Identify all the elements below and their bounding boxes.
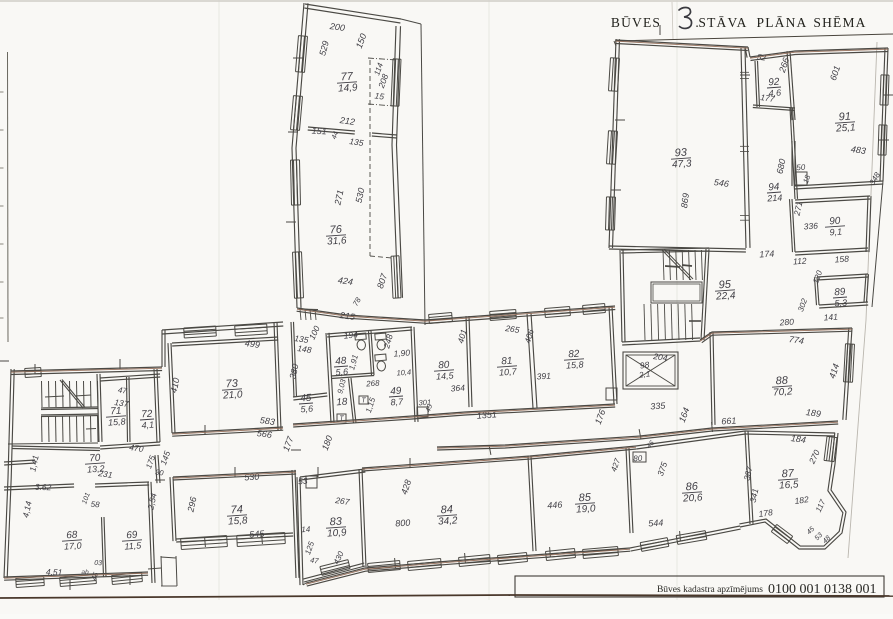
svg-text:774: 774	[788, 334, 804, 346]
svg-text:280: 280	[778, 317, 794, 328]
svg-text:95: 95	[718, 279, 732, 292]
svg-text:SHĒMA: SHĒMA	[813, 15, 866, 30]
svg-text:0100 001 0138 001: 0100 001 0138 001	[768, 582, 877, 597]
svg-text:50: 50	[796, 163, 806, 173]
svg-text:20,6: 20,6	[682, 492, 704, 504]
svg-text:86: 86	[685, 481, 699, 494]
svg-text:499: 499	[244, 338, 260, 350]
svg-text:BŪVES: BŪVES	[611, 15, 661, 30]
svg-text:4,1: 4,1	[141, 420, 154, 431]
svg-text:80: 80	[633, 454, 643, 464]
svg-text:16,5: 16,5	[779, 479, 800, 491]
svg-text:364: 364	[450, 383, 465, 394]
svg-text:19,0: 19,0	[576, 503, 597, 515]
svg-text:178: 178	[758, 507, 774, 519]
svg-text:112: 112	[793, 256, 807, 267]
svg-text:74: 74	[230, 504, 243, 517]
svg-text:17,0: 17,0	[64, 540, 82, 551]
svg-text:34,2: 34,2	[438, 515, 459, 527]
svg-text:189: 189	[805, 407, 821, 419]
svg-text:03: 03	[94, 560, 102, 568]
svg-text:83: 83	[329, 516, 343, 529]
svg-text:90: 90	[829, 216, 841, 228]
svg-text:15,8: 15,8	[566, 359, 584, 370]
svg-text:PLĀNA: PLĀNA	[756, 15, 807, 30]
svg-text:2,1: 2,1	[638, 369, 651, 380]
svg-text:70: 70	[89, 453, 101, 465]
svg-text:135: 135	[349, 136, 365, 148]
svg-text:1351: 1351	[476, 409, 497, 420]
svg-text:148: 148	[297, 343, 313, 355]
svg-text:70,2: 70,2	[773, 386, 794, 398]
svg-text:151: 151	[311, 125, 327, 136]
svg-text:87: 87	[781, 468, 795, 481]
svg-text:93: 93	[674, 147, 688, 160]
svg-text:STĀVA: STĀVA	[698, 15, 747, 30]
svg-text:10,4: 10,4	[396, 368, 411, 378]
svg-text:22,4: 22,4	[715, 290, 737, 302]
svg-text:89: 89	[834, 287, 846, 299]
svg-text:470: 470	[129, 442, 145, 454]
svg-text:8,7: 8,7	[390, 397, 404, 408]
svg-text:47,3: 47,3	[672, 158, 693, 170]
svg-text:69: 69	[126, 530, 138, 542]
svg-text:84: 84	[440, 504, 453, 517]
svg-text:424: 424	[337, 275, 353, 287]
svg-text:68: 68	[66, 530, 78, 542]
svg-text:194: 194	[343, 329, 358, 340]
svg-text:5,6: 5,6	[300, 404, 313, 415]
svg-text:81: 81	[501, 356, 513, 368]
svg-text:94: 94	[768, 182, 780, 194]
svg-text:82: 82	[568, 349, 580, 361]
svg-text:3.62: 3.62	[35, 482, 52, 493]
svg-text:158: 158	[834, 254, 849, 265]
svg-text:214: 214	[766, 192, 783, 203]
svg-text:335: 335	[650, 400, 667, 411]
svg-text:391: 391	[536, 371, 551, 382]
svg-text:204: 204	[652, 351, 669, 363]
svg-text:14,5: 14,5	[436, 370, 455, 381]
svg-text:15,8: 15,8	[228, 515, 249, 527]
svg-text:91: 91	[838, 111, 851, 124]
svg-text:14,9: 14,9	[338, 82, 359, 94]
svg-text:18: 18	[336, 397, 348, 409]
svg-text:137: 137	[114, 397, 130, 409]
svg-text:265: 265	[504, 323, 521, 335]
svg-text:9,1: 9,1	[829, 227, 842, 238]
svg-text:72: 72	[141, 409, 153, 421]
svg-text:76: 76	[329, 224, 343, 237]
svg-text:267: 267	[334, 495, 351, 507]
svg-text:583: 583	[259, 415, 275, 427]
svg-text:80: 80	[438, 360, 450, 372]
svg-text:15: 15	[374, 90, 385, 101]
svg-text:231: 231	[97, 468, 114, 480]
svg-text:177: 177	[760, 92, 776, 104]
svg-text:869: 869	[679, 192, 691, 208]
svg-text:88: 88	[775, 375, 789, 388]
svg-text:10,9: 10,9	[327, 527, 348, 539]
svg-text:800: 800	[395, 517, 411, 528]
svg-text:546: 546	[713, 177, 729, 189]
svg-text:25,1: 25,1	[835, 122, 856, 134]
svg-text:544: 544	[648, 517, 664, 528]
svg-text:446: 446	[547, 499, 563, 510]
svg-text:21,0: 21,0	[222, 389, 244, 401]
svg-text:483: 483	[850, 144, 866, 156]
svg-text:5,3: 5,3	[834, 298, 847, 309]
svg-text:47: 47	[117, 385, 128, 395]
svg-text:14: 14	[301, 525, 311, 535]
svg-text:182: 182	[794, 494, 810, 506]
svg-text:661: 661	[721, 415, 737, 426]
svg-text:184: 184	[790, 433, 806, 445]
svg-text:11,5: 11,5	[124, 540, 142, 551]
svg-text:58: 58	[90, 500, 100, 510]
svg-text:545: 545	[249, 528, 266, 539]
svg-text:10,7: 10,7	[499, 366, 518, 377]
svg-text:73: 73	[225, 378, 239, 391]
svg-text:53: 53	[298, 476, 308, 487]
svg-text:1,90: 1,90	[393, 347, 410, 358]
svg-text:15,8: 15,8	[108, 416, 126, 427]
svg-text:4,51: 4,51	[46, 567, 63, 578]
svg-text:49: 49	[390, 386, 402, 398]
svg-text:174: 174	[759, 248, 775, 259]
svg-text:Būves kadastra apzīmējums: Būves kadastra apzīmējums	[657, 585, 763, 595]
svg-text:268: 268	[365, 379, 380, 389]
svg-text:85: 85	[578, 492, 592, 505]
svg-text:45: 45	[300, 393, 312, 405]
svg-text:92: 92	[768, 77, 780, 89]
svg-text:77: 77	[340, 71, 354, 84]
svg-text:48: 48	[335, 356, 347, 368]
svg-text:336: 336	[803, 221, 818, 232]
svg-text:31,6: 31,6	[327, 235, 348, 247]
svg-text:141: 141	[823, 312, 838, 323]
svg-text:530: 530	[244, 471, 260, 482]
